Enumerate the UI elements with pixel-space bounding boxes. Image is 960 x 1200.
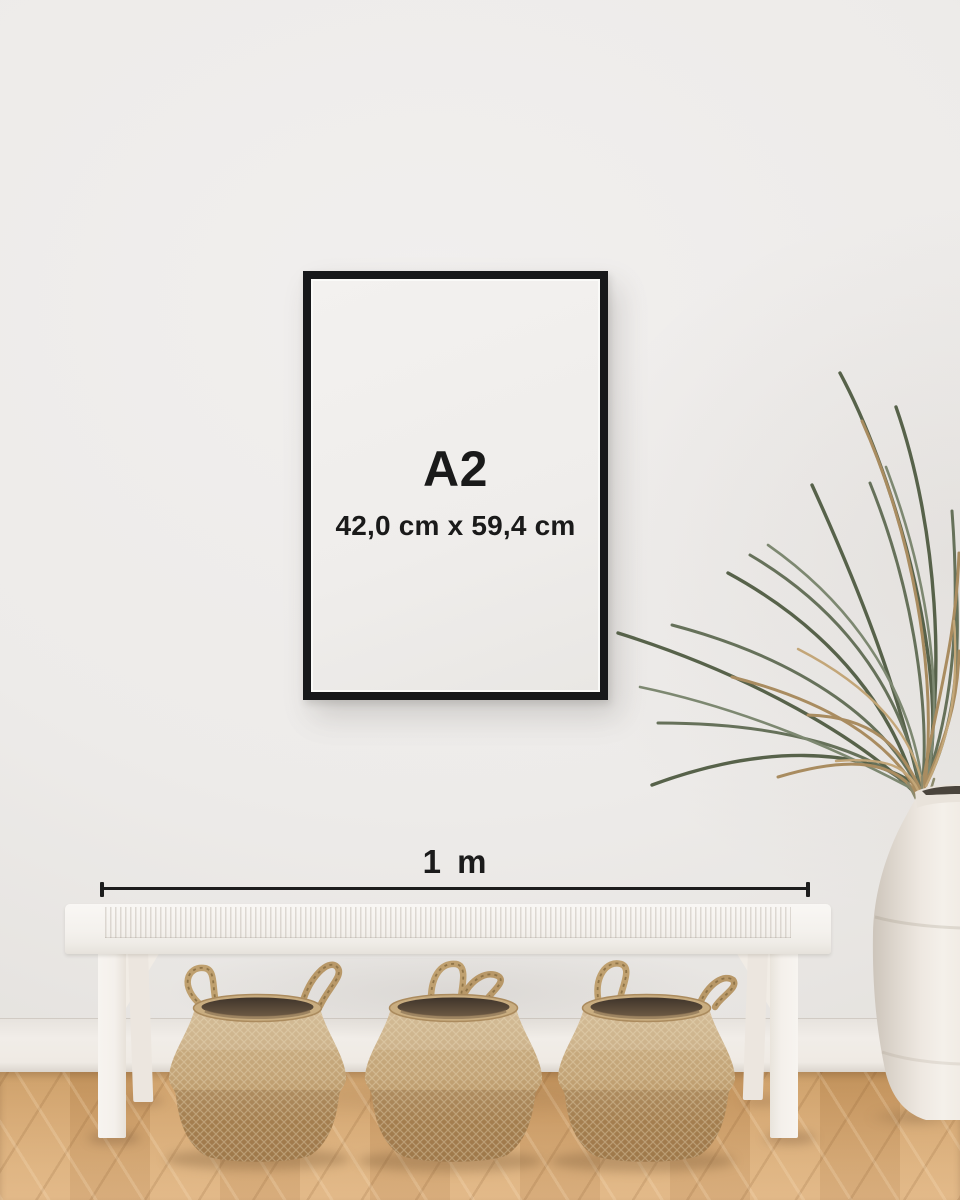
picture-frame: A2 42,0 cm x 59,4 cm bbox=[303, 271, 608, 700]
ruler-label: 1 m bbox=[305, 843, 605, 881]
bench-woven-top bbox=[105, 907, 791, 938]
bench-leg bbox=[98, 950, 126, 1138]
frame-dimensions-label: 42,0 cm x 59,4 cm bbox=[335, 512, 575, 540]
palm-plant bbox=[600, 315, 960, 815]
ruler-line bbox=[102, 887, 808, 890]
floor-vase bbox=[866, 782, 960, 1127]
ruler-tick-right bbox=[806, 882, 810, 897]
ruler-tick-left bbox=[100, 882, 104, 897]
seagrass-basket bbox=[356, 958, 551, 1170]
seagrass-basket bbox=[160, 958, 355, 1170]
frame-size-label: A2 bbox=[423, 444, 488, 494]
room-scene: A2 42,0 cm x 59,4 cm 1 m bbox=[0, 0, 960, 1200]
bench-seat bbox=[65, 904, 831, 954]
bench-leg bbox=[770, 950, 798, 1138]
seagrass-basket bbox=[549, 958, 744, 1170]
frame-mat: A2 42,0 cm x 59,4 cm bbox=[311, 279, 600, 692]
